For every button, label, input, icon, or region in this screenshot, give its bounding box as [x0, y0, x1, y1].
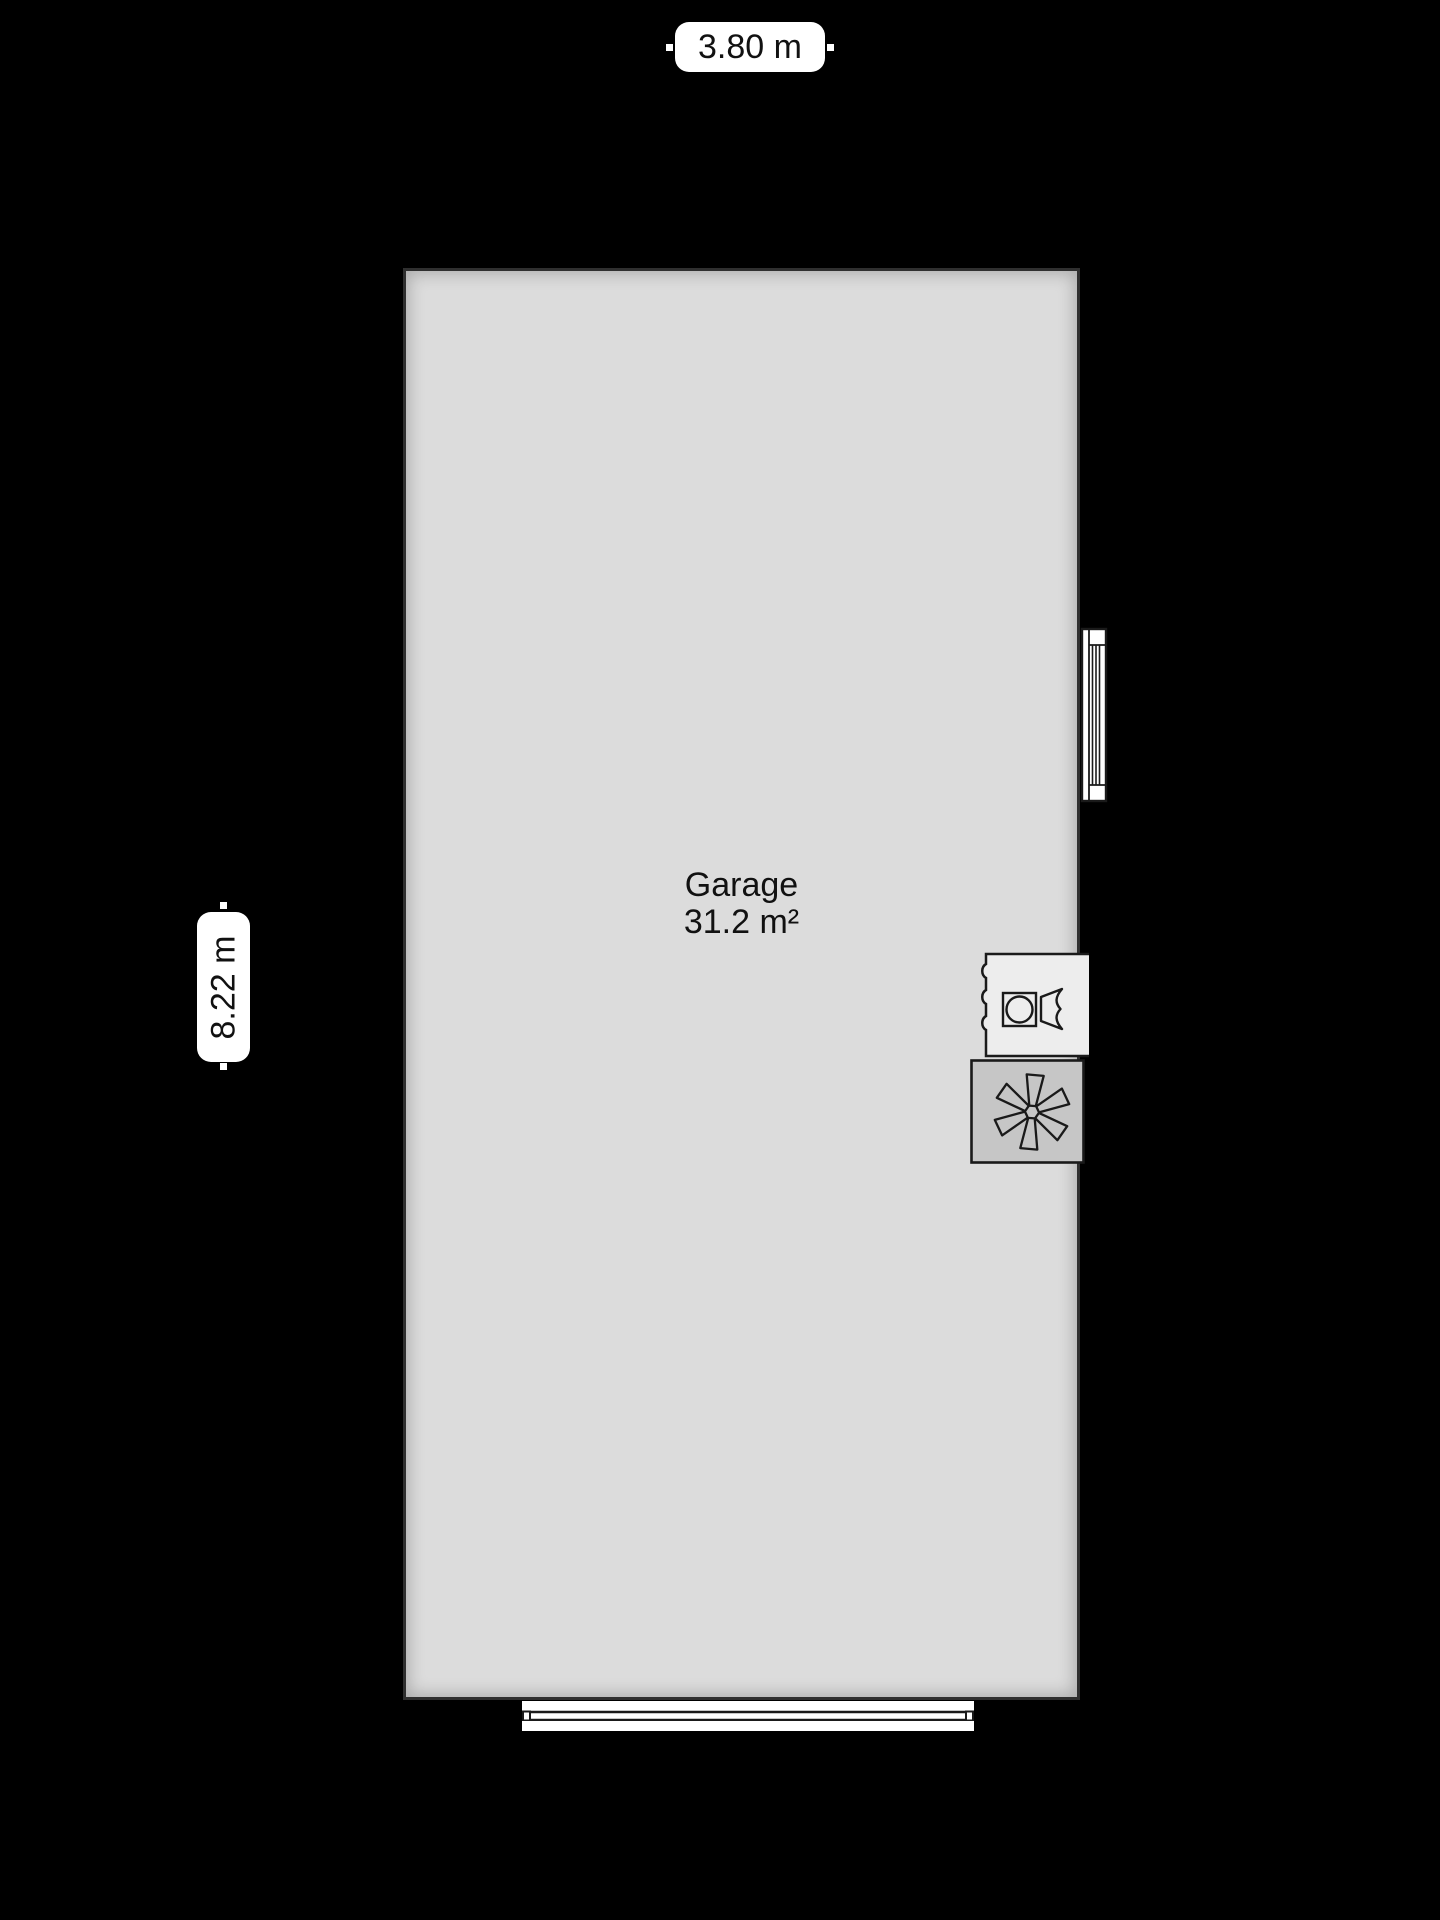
room-area: 31.2 m² — [406, 904, 1077, 941]
dimension-tick — [220, 1063, 227, 1070]
room-label: Garage 31.2 m² — [406, 867, 1077, 941]
dimension-label-width: 3.80 m — [675, 22, 825, 72]
floor-plan-canvas: Garage 31.2 m² — [0, 0, 1440, 1920]
dimension-tick — [220, 902, 227, 909]
garage-door-icon — [520, 1699, 976, 1733]
ventilation-fan-icon — [972, 1061, 1084, 1163]
room-name: Garage — [406, 867, 1077, 904]
dimension-width-text: 3.80 m — [698, 28, 802, 67]
dimension-tick — [827, 44, 834, 51]
dimension-label-height: 8.22 m — [197, 912, 250, 1062]
window-icon — [1080, 627, 1108, 803]
fixtures-group — [965, 945, 1090, 1170]
dimension-tick — [666, 44, 673, 51]
dimension-height-text: 8.22 m — [204, 935, 243, 1039]
washing-machine-icon — [982, 954, 1089, 1056]
